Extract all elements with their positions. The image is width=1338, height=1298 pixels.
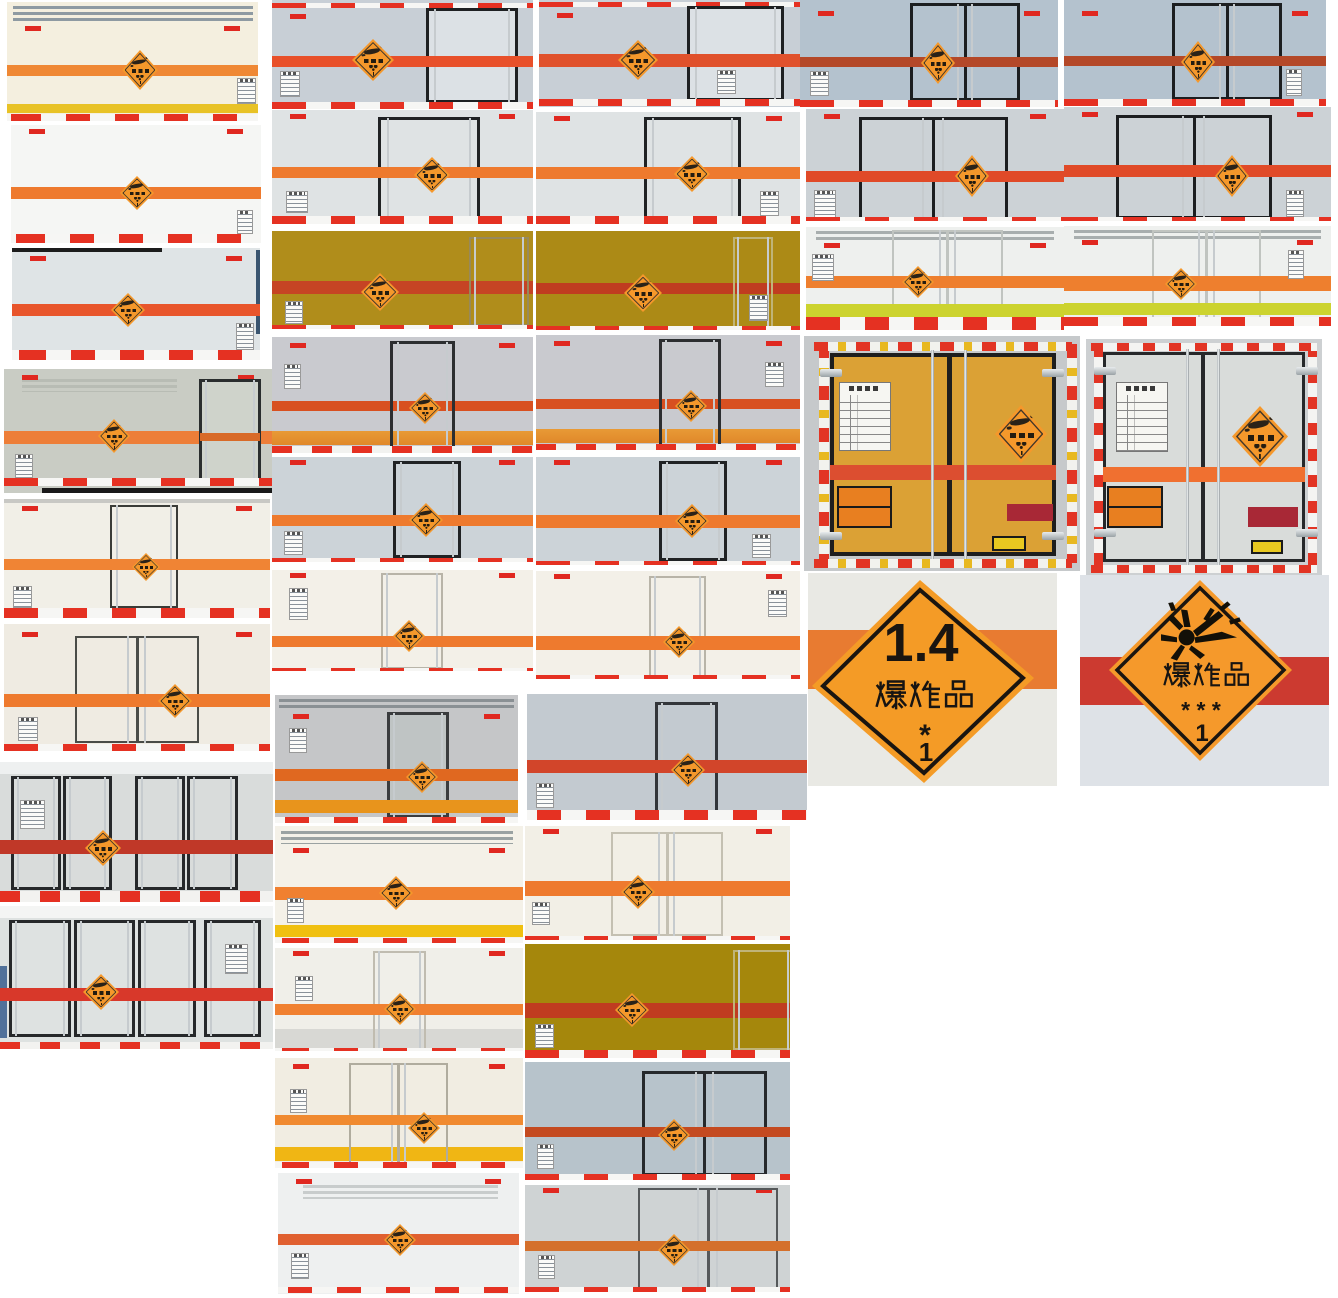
- svg-text:1.4: 1.4: [883, 613, 958, 673]
- svg-text:1: 1: [919, 737, 933, 767]
- svg-text:1: 1: [1195, 720, 1208, 747]
